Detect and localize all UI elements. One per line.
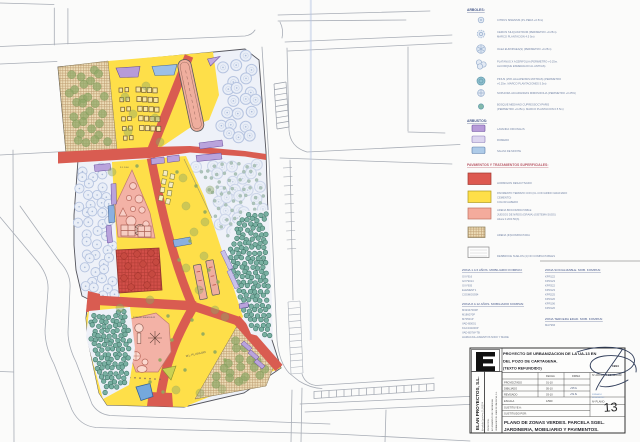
svg-text:OLEA EUROPAEA(S) (PERIMETRO +0: OLEA EUROPAEA(S) (PERIMETRO +0.25m) xyxy=(497,47,551,51)
svg-text:ZONA 1 A 6 AÑOS. MOBILIARIO KO: ZONA 1 A 6 AÑOS. MOBILIARIO KOMPAN: xyxy=(462,267,522,272)
svg-text:DIBUJADO: DIBUJADO xyxy=(504,387,517,391)
svg-text:ELAN PROYECTOS, S.L.: ELAN PROYECTOS, S.L. xyxy=(475,376,480,430)
svg-text:ELEMENT1: ELEMENT1 xyxy=(462,288,477,292)
svg-text:+0.25m. MARCO PLANTACIONES 5.5: +0.25m. MARCO PLANTACIONES 5.5m) xyxy=(497,82,547,86)
svg-text:URBANIZACION. MARI DE VALENCIA: URBANIZACION. MARI DE VALENCIA, S.L. xyxy=(495,391,498,431)
svg-text:ZONA TERCERA EDAD. MOB. KOMPAN: ZONA TERCERA EDAD. MOB. KOMPAN: xyxy=(545,317,603,321)
svg-text:AYUNTAMIENTO DE CARTAGENA: AYUNTAMIENTO DE CARTAGENA xyxy=(491,399,494,431)
svg-text:13: 13 xyxy=(603,400,618,415)
svg-text:ARENA (IN)COMPACTADA: ARENA (IN)COMPACTADA xyxy=(497,233,530,237)
svg-text:JARDINERIA, MOBILIARIO Y PAVIM: JARDINERIA, MOBILIARIO Y PAVIMENTOS. xyxy=(504,427,599,432)
svg-text:VAD-B0001: VAD-B0001 xyxy=(462,322,476,326)
svg-text:ROMERO: ROMERO xyxy=(497,138,509,142)
svg-text:GXY9014: GXY9014 xyxy=(462,279,474,283)
svg-text:KGC341000P: KGC341000P xyxy=(462,326,479,330)
svg-text:KPR225: KPR225 xyxy=(545,293,556,297)
svg-text:M32347000P: M32347000P xyxy=(462,308,478,312)
svg-text:ARBOLES:: ARBOLES: xyxy=(467,8,485,12)
svg-text:01-10: 01-10 xyxy=(546,381,553,385)
svg-text:CEMENTO): CEMENTO) xyxy=(497,195,511,199)
svg-text:GXY905: GXY905 xyxy=(462,284,473,288)
svg-text:MAY966: MAY966 xyxy=(545,323,556,327)
svg-text:FIRMA: FIRMA xyxy=(572,374,580,378)
svg-text:GXY916: GXY916 xyxy=(462,275,473,279)
svg-text:VAD-B07W-TB: VAD-B07W-TB xyxy=(462,331,480,335)
svg-text:CERCIS SILIQUASTRUM (PERIMETRO: CERCIS SILIQUASTRUM (PERIMETRO +0.25m). xyxy=(497,30,557,34)
svg-text:1994: 1994 xyxy=(612,364,619,368)
svg-text:REVISADO: REVISADO xyxy=(504,393,517,397)
svg-text:KPR123: KPR123 xyxy=(545,288,556,292)
svg-text:LAVANDA OFICINALIS: LAVANDA OFICINALIS xyxy=(497,127,525,131)
svg-text:DEL POZO DE CARTAGENA.: DEL POZO DE CARTAGENA. xyxy=(503,359,558,364)
svg-text:(PERIMETRO +0.25m). MARCO PLAN: (PERIMETRO +0.25m). MARCO PLANTACION 0.5… xyxy=(497,107,564,111)
svg-text:Altura 0.20/0.50(h): Altura 0.20/0.50(h) xyxy=(497,217,519,221)
svg-text:SOPHORA JACARANDAS MIMOSIFOLIA: SOPHORA JACARANDAS MIMOSIFOLIA (PERIMETR… xyxy=(497,91,576,95)
svg-text:Z.J. 1-3-6: Z.J. 1-3-6 xyxy=(120,167,129,169)
svg-text:FIRMADO: FIRMADO xyxy=(592,393,602,396)
svg-text:J.S.S.: J.S.S. xyxy=(570,392,578,396)
svg-text:ZONA SOCIALIZABLE. MOB. KOMPAN: ZONA SOCIALIZABLE. MOB. KOMPAN: xyxy=(545,268,601,272)
svg-text:HORMIGON DESACTIVADO: HORMIGON DESACTIVADO xyxy=(497,181,532,185)
svg-text:MARCO PLANTACION 4.5 5m): MARCO PLANTACION 4.5 5m) xyxy=(497,35,535,39)
svg-text:05-10: 05-10 xyxy=(546,387,553,391)
svg-text:ZONA 8 A 12 AÑOS. MOBILIARIO K: ZONA 8 A 12 AÑOS. MOBILIARIO KOMPAN: xyxy=(462,301,524,306)
svg-text:FECHA: FECHA xyxy=(546,374,555,378)
svg-text:PINUS (25% HALAPENSIS MIXTRAS): PINUS (25% HALAPENSIS MIXTRAS) (PERIMETR… xyxy=(497,77,561,81)
svg-text:03-10: 03-10 xyxy=(546,393,553,397)
svg-text:J.P.G.: J.P.G. xyxy=(570,386,578,390)
svg-text:KPR123: KPR123 xyxy=(545,279,556,283)
svg-text:KPR322: KPR322 xyxy=(545,284,556,288)
svg-text:ZONA DE JUEGOS 8-12: ZONA DE JUEGOS 8-12 xyxy=(133,316,156,319)
svg-text:ARBUSTOS:: ARBUSTOS: xyxy=(467,119,487,123)
svg-text:COSMOS934: COSMOS934 xyxy=(462,293,479,297)
svg-text:SUSTITUYE A:: SUSTITUYE A: xyxy=(504,406,522,410)
svg-text:ALCORQUE ESMERALDO AL ANTFAS): ALCORQUE ESMERALDO AL ANTFAS) xyxy=(497,64,546,68)
svg-text:DESBROCE SUELOS (4) NO COMPACT: DESBROCE SUELOS (4) NO COMPACTABLES xyxy=(497,254,555,258)
svg-text:PAVIMENTO TERRIZO CON (CL.CON: PAVIMENTO TERRIZO CON (CL.CON ARIDO GRAF… xyxy=(497,191,567,195)
svg-text:KPR126: KPR126 xyxy=(545,306,556,310)
svg-text:PROYECTADO: PROYECTADO xyxy=(504,381,522,385)
svg-text:SALVIA DE MONTE: SALVIA DE MONTE xyxy=(497,149,521,153)
svg-text:M186070P: M186070P xyxy=(462,313,475,317)
svg-text:M70501P: M70501P xyxy=(462,317,474,321)
svg-text:(TEXTO REFUNDIDO): (TEXTO REFUNDIDO) xyxy=(503,367,542,371)
svg-text:PLATANUS X ACERIFOLIA (PERIMET: PLATANUS X ACERIFOLIA (PERIMETRO +0.25m. xyxy=(497,60,558,64)
svg-text:ARENA BIOCOMPACTABLE: ARENA BIOCOMPACTABLE xyxy=(497,208,532,212)
svg-text:BOSQUE MEDIANO CUPRESSOCYPARIS: BOSQUE MEDIANO CUPRESSOCYPARIS xyxy=(497,103,549,107)
svg-text:PROMOTOR:: PROMOTOR: xyxy=(488,418,490,431)
svg-text:COLOR ALBERO: COLOR ALBERO xyxy=(497,200,518,204)
svg-text:PLANO DE ZONAS VERDES. PARCELA: PLANO DE ZONAS VERDES. PARCELA SGEL. xyxy=(504,420,605,425)
svg-text:INGENIERO: INGENIERO xyxy=(592,397,605,399)
svg-text:PROYECTO DE URBANIZACION DE LA: PROYECTO DE URBANIZACION DE LA UA-13 EN xyxy=(503,351,596,356)
svg-text:HAMACAS+ASIENTOS NIDO Y MADE: HAMACAS+ASIENTOS NIDO Y MADE xyxy=(462,335,509,339)
svg-text:SUSTITUIDO POR:: SUSTITUIDO POR: xyxy=(504,412,527,416)
svg-text:ESCALA: ESCALA xyxy=(504,399,515,403)
svg-text:KPR106: KPR106 xyxy=(545,302,556,306)
svg-text:1/500: 1/500 xyxy=(546,399,553,403)
svg-text:CITRUS SINENSIS (PL.PERA +0.5/: CITRUS SINENSIS (PL.PERA +0.5/m) xyxy=(497,18,543,22)
svg-text:KPR122: KPR122 xyxy=(545,275,556,279)
svg-text:PAVIMENTOS Y TRATAMIENTOS SUPE: PAVIMENTOS Y TRATAMIENTOS SUPERFICIALES: xyxy=(467,163,548,167)
svg-text:KPR126: KPR126 xyxy=(545,297,556,301)
